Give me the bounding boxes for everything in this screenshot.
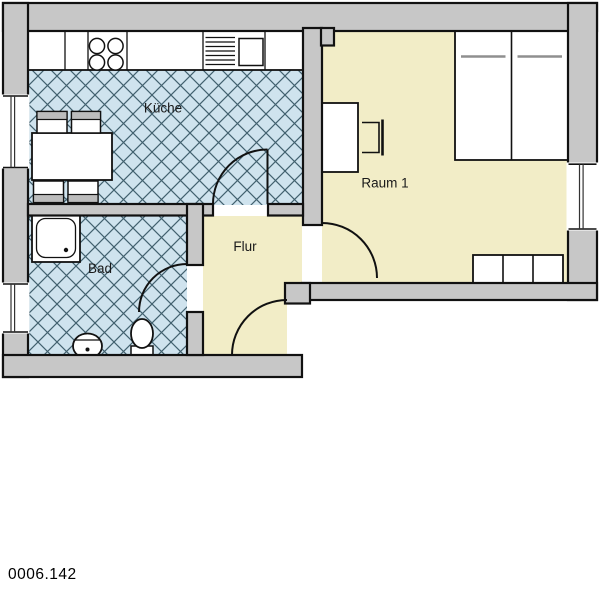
plan-number: 0006.142	[8, 566, 77, 584]
wall-top	[3, 3, 597, 31]
dining-chair	[34, 181, 64, 203]
cabinet	[473, 255, 563, 283]
wall-bath-hall-lower	[187, 312, 203, 355]
wall-right	[568, 3, 597, 300]
wall-entry-jamb	[285, 283, 310, 304]
room-label-hall: Flur	[233, 239, 257, 254]
window-room1	[567, 163, 600, 231]
toilet-icon	[131, 319, 153, 356]
dining-chair	[72, 112, 101, 134]
desk	[322, 103, 358, 172]
window-kitchen	[1, 95, 30, 169]
wall-bottom	[3, 355, 302, 377]
shower-icon	[32, 214, 80, 262]
wall-room1-notch	[321, 28, 334, 46]
room-label-room1: Raum 1	[361, 176, 408, 191]
wall-kitchen-hall-right	[268, 204, 303, 216]
dining-chair	[37, 112, 67, 134]
wall-bath-hall-upper	[187, 204, 203, 265]
floor-plan: Küche Bad Flur Raum 1	[0, 0, 600, 594]
window-bath	[1, 283, 30, 334]
wall-kitchen-bath-left	[28, 204, 213, 216]
room-label-bath: Bad	[88, 261, 112, 276]
dining-chair	[68, 181, 98, 203]
dining-table	[32, 133, 112, 180]
room-label-kitchen: Küche	[144, 101, 182, 116]
wall-kitchen-room1	[303, 28, 322, 225]
double-bed	[455, 31, 568, 160]
wall-room1-bottom	[302, 283, 597, 300]
